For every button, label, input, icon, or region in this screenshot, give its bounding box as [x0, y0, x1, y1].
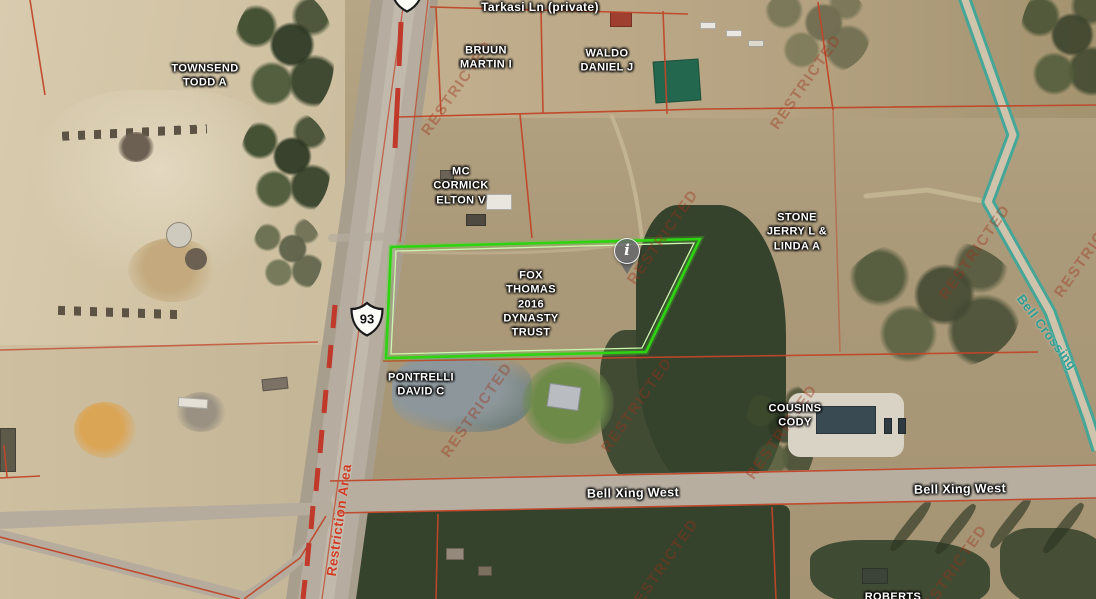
parcel-info-marker[interactable]: i [614, 238, 642, 280]
road-label-bell-xing-west-1: Bell Xing West [587, 485, 679, 501]
road-label-tarkasi-ln: Tarkasi Ln (private) [481, 0, 599, 14]
road-label-bell-xing-west-2: Bell Xing West [914, 481, 1006, 497]
parcel-label-mccormick: MC CORMICK ELTON V [433, 165, 488, 208]
parcel-label-pontrelli: PONTRELLI DAVID C [388, 371, 454, 400]
parcel-label-roberts: ROBERTS [865, 590, 922, 599]
driveways [402, 117, 988, 253]
parcel-label-cousins: COUSINS CODY [769, 402, 822, 431]
parcel-label-bruun: BRUUN MARTIN I [460, 44, 512, 73]
parcel-label-waldo: WALDO DANIEL J [580, 47, 633, 76]
map-canvas[interactable]: 93 RESTRICTED RESTRICTED RESTRICTED REST… [0, 0, 1096, 599]
parcel-label-townsend: TOWNSEND TODD A [171, 62, 238, 91]
parcel-label-stone: STONE JERRY L & LINDA A [767, 211, 827, 254]
info-icon: i [614, 241, 640, 259]
shield-number: 93 [360, 312, 374, 327]
parcel-label-fox-thomas-trust: FOX THOMAS 2016 DYNASTY TRUST [503, 268, 558, 339]
